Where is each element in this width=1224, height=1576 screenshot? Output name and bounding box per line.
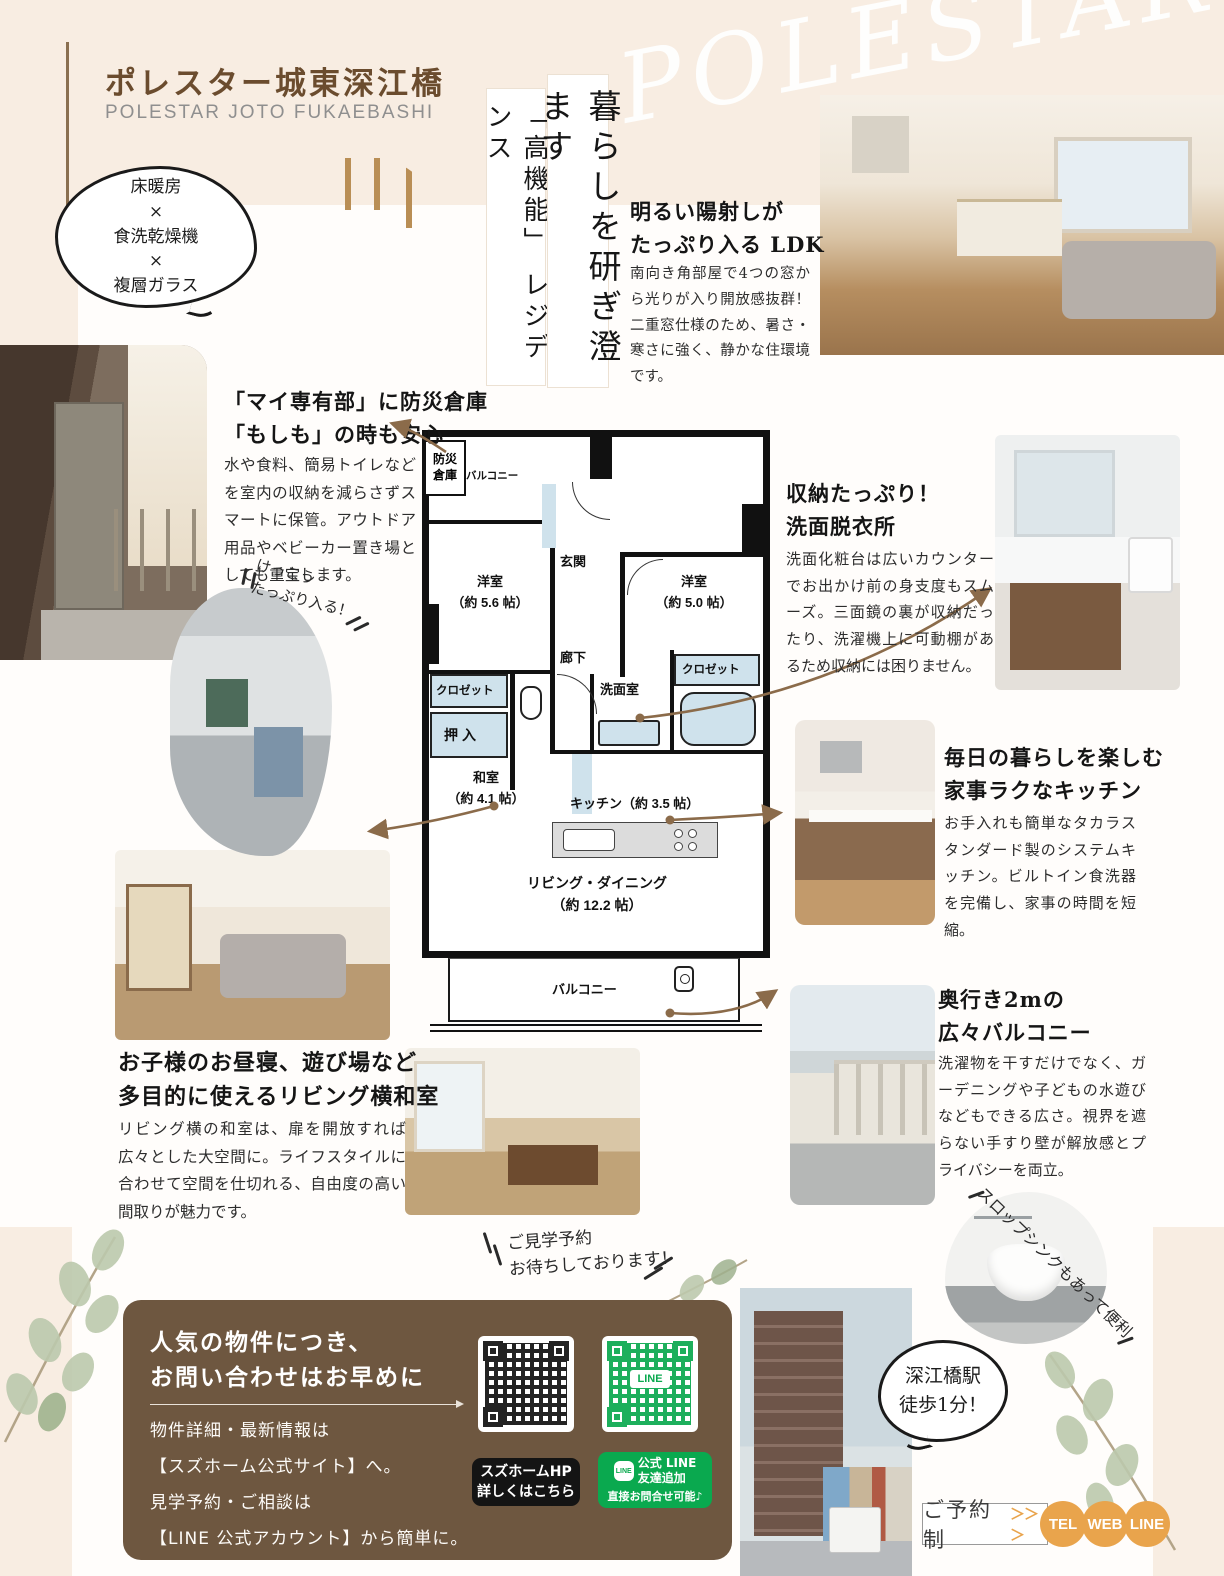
tagline-banner-main: 暮らしを研ぎ澄ます bbox=[547, 74, 609, 388]
washitsu-heading: お子様のお昼寝、遊び場など 多目的に使えるリビング横和室 bbox=[118, 1046, 439, 1114]
qr-line-caption[interactable]: LINE 公式 LINE 友達追加 直接お問合せ可能♪ bbox=[598, 1452, 712, 1508]
contact-line-4: 【LINE 公式アカウント】から簡単に。 bbox=[150, 1524, 468, 1549]
plan-label-washroom: 洗面室 bbox=[600, 680, 639, 701]
senmen-heading: 収納たっぷり！ 洗面脱衣所 bbox=[786, 478, 940, 543]
qr-code-homepage[interactable] bbox=[478, 1336, 574, 1432]
tel-button[interactable]: TEL bbox=[1040, 1501, 1086, 1547]
plan-label-closet1: クロゼット bbox=[436, 682, 494, 700]
photo-building-exterior bbox=[740, 1288, 912, 1576]
photo-balcony bbox=[790, 985, 935, 1205]
plan-label-balcony-top: バルコニー bbox=[466, 468, 518, 485]
reservation-label: ご予約制 bbox=[923, 1494, 1004, 1554]
line-button[interactable]: LINE bbox=[1124, 1501, 1170, 1547]
plan-label-closet2: クロゼット bbox=[682, 661, 740, 679]
contact-line-1: 物件詳細・最新情報は bbox=[150, 1416, 330, 1441]
floor-plan: 防災 倉庫 バルコニー 玄関 洋室 （約 5.6 帖） 洋室 （約 5.0 帖）… bbox=[422, 424, 772, 1038]
balcony-heading: 奥行き2mの 広々バルコニー bbox=[938, 984, 1092, 1049]
plan-toilet-fixture bbox=[520, 686, 542, 720]
ldk-heading: 明るい陽射しが たっぷり入る LDK bbox=[630, 196, 825, 261]
plan-label-bedroom1: 洋室 （約 5.6 帖） bbox=[434, 572, 546, 614]
senmen-body: 洗面化粧台は広いカウンターでお出かけ前の身支度もスムーズ。三面鏡の裏が収納だった… bbox=[786, 546, 994, 679]
flyer-page: POLESTAR ポレスター城東深江橋 POLESTAR JOTO FUKAEB… bbox=[0, 0, 1224, 1576]
plan-label-kitchen: キッチン（約 3.5 帖） bbox=[570, 794, 699, 815]
ldk-body: 南向き角部屋で4つの窓から光りが入り開放感抜群！二重窓仕様のため、暑さ・寒さに強… bbox=[630, 262, 810, 391]
qr-line-caption-sub: 直接お問合せ可能♪ bbox=[607, 1488, 702, 1504]
plan-label-living: リビング・ダイニング （約 12.2 帖） bbox=[502, 872, 692, 917]
bousai-heading: 「マイ専有部」に防災倉庫 「もしも」の時も安心 bbox=[224, 386, 488, 451]
contact-heading: 人気の物件につき、 お問い合わせはお早めに bbox=[150, 1326, 425, 1395]
plan-label-hallway: 廊下 bbox=[560, 648, 586, 669]
line-icon: LINE bbox=[614, 1461, 634, 1481]
qr-homepage-caption[interactable]: スズホームHP 詳しくはこちら bbox=[472, 1458, 580, 1506]
tagline-main-text: 暮らしを研ぎ澄ます bbox=[530, 89, 626, 387]
plan-kitchen-counter bbox=[552, 822, 718, 858]
photo-floor-heating bbox=[262, 152, 442, 312]
photo-private-porch bbox=[0, 345, 207, 660]
photo-washroom bbox=[995, 435, 1180, 690]
page-title: ポレスター城東深江橋 bbox=[105, 58, 445, 103]
page-title-en: POLESTAR JOTO FUKAEBASHI bbox=[105, 102, 434, 124]
plan-label-bedroom2: 洋室 （約 5.0 帖） bbox=[630, 572, 758, 614]
photo-kitchen bbox=[795, 720, 935, 925]
photo-slop-sink bbox=[945, 1192, 1107, 1344]
kitchen-body: お手入れも簡単なタカラスタンダード製のシステムキッチン。ビルトイン食洗器を完備し… bbox=[944, 810, 1136, 943]
reservation-box: ご予約制 ＞＞＞ bbox=[922, 1503, 1048, 1545]
contact-line-3: 見学予約・ご相談は bbox=[150, 1488, 312, 1513]
photo-living-dining bbox=[405, 1048, 640, 1215]
contact-divider-arrow bbox=[150, 1404, 462, 1405]
kitchen-heading: 毎日の暮らしを楽しむ 家事ラクなキッチン bbox=[944, 742, 1164, 807]
plan-label-balcony-bottom: バルコニー bbox=[552, 980, 617, 1001]
line-qr-badge: LINE bbox=[630, 1370, 670, 1388]
balcony-body: 洗濯物を干すだけでなく、ガーデニングや子どもの水遊びなどもできる広さ。視界を遮ら… bbox=[938, 1050, 1146, 1183]
eucalyptus-leaf-left bbox=[0, 1222, 140, 1452]
contact-line-2: 【スズホーム公式サイト】へ。 bbox=[150, 1452, 402, 1477]
station-speech-bubble: 深江橋駅 徒歩1分！ bbox=[878, 1340, 1008, 1442]
plan-label-tatami: 和室 （約 4.1 帖） bbox=[430, 768, 542, 810]
plan-boundary-lines bbox=[430, 1024, 762, 1032]
qr-code-line[interactable]: LINE bbox=[602, 1336, 698, 1432]
photo-living-tatami bbox=[115, 850, 390, 1040]
photo-disaster-storage bbox=[170, 588, 332, 856]
washitsu-body: リビング横の和室は、扉を開放すれば広々とした大空間に。ライフスタイルに合わせて空… bbox=[118, 1116, 406, 1226]
plan-slop-sink bbox=[674, 966, 694, 992]
plan-label-oshiire: 押入 bbox=[444, 724, 480, 746]
qr-line-caption-text: 公式 LINE 友達追加 bbox=[638, 1456, 697, 1486]
web-button[interactable]: WEB bbox=[1082, 1501, 1128, 1547]
plan-label-entrance: 玄関 bbox=[560, 552, 586, 573]
photo-ldk bbox=[820, 95, 1224, 355]
